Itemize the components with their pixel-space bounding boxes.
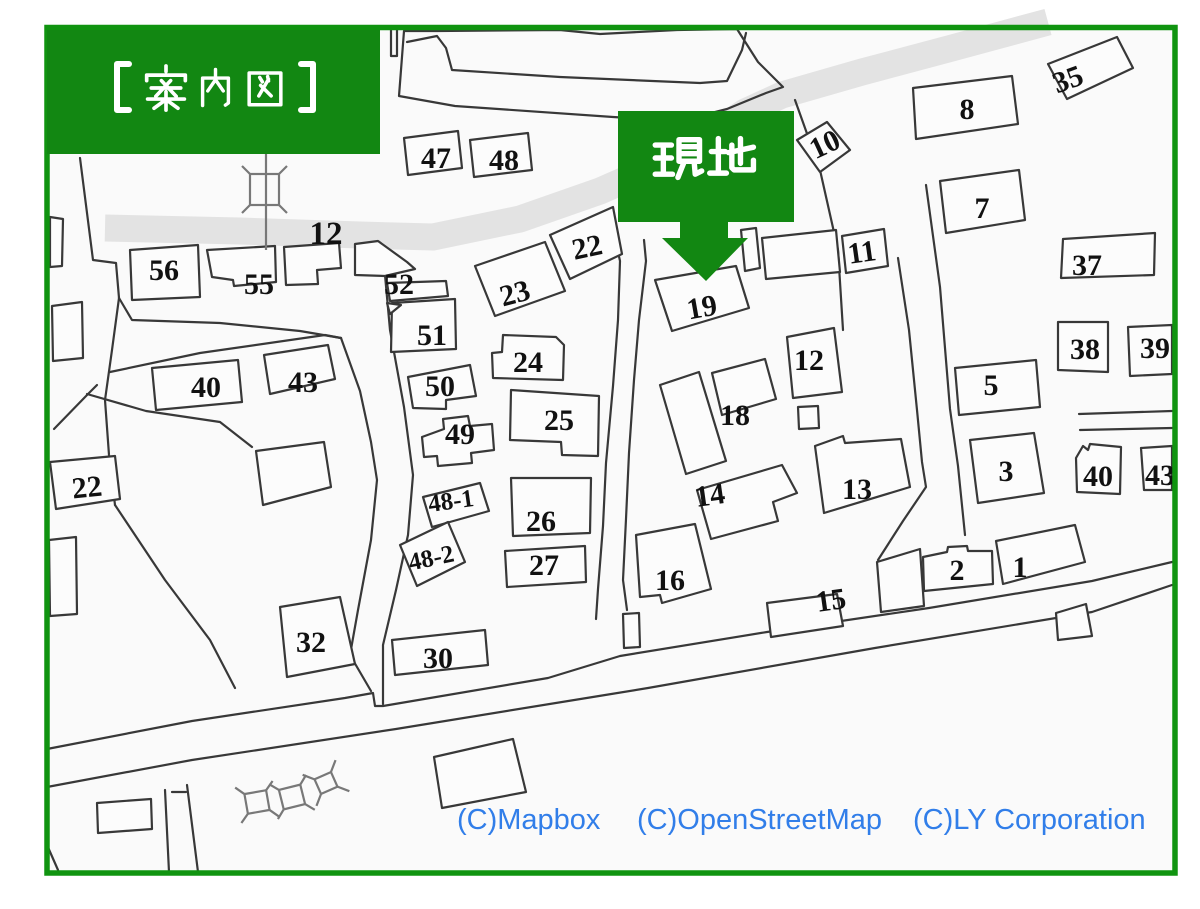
svg-text:51: 51 (417, 319, 447, 352)
svg-text:12: 12 (310, 216, 343, 252)
svg-text:55: 55 (244, 268, 274, 301)
svg-text:14: 14 (693, 477, 727, 514)
svg-text:50: 50 (425, 370, 455, 403)
svg-text:27: 27 (529, 549, 559, 582)
svg-text:13: 13 (842, 473, 872, 506)
svg-text:25: 25 (544, 404, 574, 437)
svg-text:19: 19 (684, 289, 719, 327)
svg-text:52: 52 (384, 268, 414, 301)
svg-text:18: 18 (720, 399, 750, 432)
svg-text:8: 8 (960, 93, 975, 126)
svg-text:37: 37 (1072, 249, 1102, 282)
svg-text:16: 16 (655, 564, 685, 597)
svg-text:43: 43 (288, 366, 318, 399)
svg-text:22: 22 (70, 470, 103, 506)
svg-text:56: 56 (149, 254, 179, 287)
svg-text:49: 49 (445, 418, 475, 451)
svg-text:39: 39 (1140, 332, 1170, 365)
svg-text:48: 48 (489, 144, 519, 177)
svg-text:(C)Mapbox: (C)Mapbox (457, 804, 601, 836)
svg-text:26: 26 (526, 505, 556, 538)
svg-text:3: 3 (999, 455, 1014, 488)
svg-text:5: 5 (984, 369, 999, 402)
svg-text:32: 32 (296, 626, 326, 659)
svg-text:15: 15 (814, 582, 848, 619)
svg-text:(C)LY Corporation: (C)LY Corporation (913, 804, 1146, 836)
svg-text:47: 47 (421, 142, 451, 175)
svg-text:1: 1 (1013, 551, 1028, 584)
svg-text:7: 7 (975, 192, 990, 225)
svg-text:12: 12 (794, 344, 824, 377)
svg-text:(C)OpenStreetMap: (C)OpenStreetMap (637, 804, 882, 836)
svg-text:40: 40 (191, 371, 221, 404)
svg-text:11: 11 (846, 234, 879, 271)
svg-text:30: 30 (423, 642, 453, 675)
svg-text:43: 43 (1145, 459, 1175, 492)
svg-text:24: 24 (513, 346, 543, 379)
svg-text:38: 38 (1070, 333, 1100, 366)
svg-text:40: 40 (1083, 460, 1113, 493)
svg-text:2: 2 (950, 554, 965, 587)
